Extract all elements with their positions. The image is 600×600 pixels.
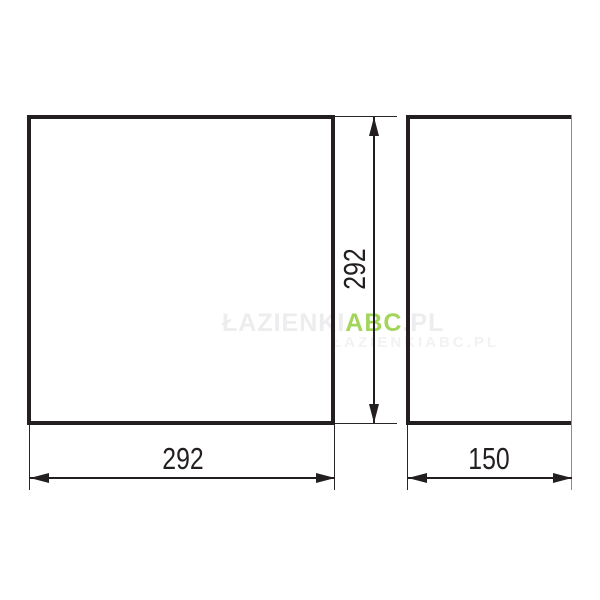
arrow-right-icon-side (553, 473, 572, 483)
height-dimension-label: 292 (337, 248, 373, 289)
arrow-left-icon-side (408, 473, 427, 483)
front-width-dimension-line (29, 477, 335, 479)
arrow-up-icon (369, 117, 379, 136)
front-width-dimension-label: 292 (162, 441, 203, 477)
extension-line-bottom-right (335, 423, 397, 424)
arrow-right-icon-front (316, 473, 335, 483)
extension-line-top-right (335, 116, 397, 117)
side-width-dimension-label: 150 (468, 441, 509, 477)
side-width-dimension-line (407, 477, 572, 479)
arrow-down-icon (369, 404, 379, 423)
side-view-outline (406, 115, 572, 425)
side-view-right-edge-line (571, 115, 572, 490)
front-view-outline (27, 115, 335, 425)
arrow-left-icon-front (30, 473, 49, 483)
height-dimension-line (373, 117, 375, 423)
technical-drawing-canvas: ŁAZIENKIABC.PL ŁAZIENKIABC.PL 292 292 15… (0, 0, 600, 600)
